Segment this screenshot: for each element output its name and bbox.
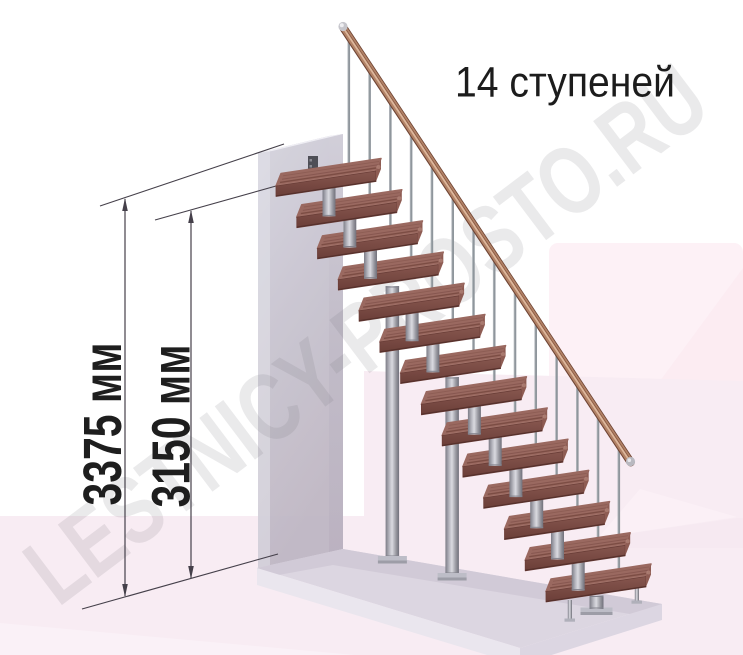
svg-text:3375 мм: 3375 мм [73,343,133,506]
svg-text:14 ступеней: 14 ступеней [455,59,675,107]
svg-text:3150 мм: 3150 мм [142,345,202,508]
